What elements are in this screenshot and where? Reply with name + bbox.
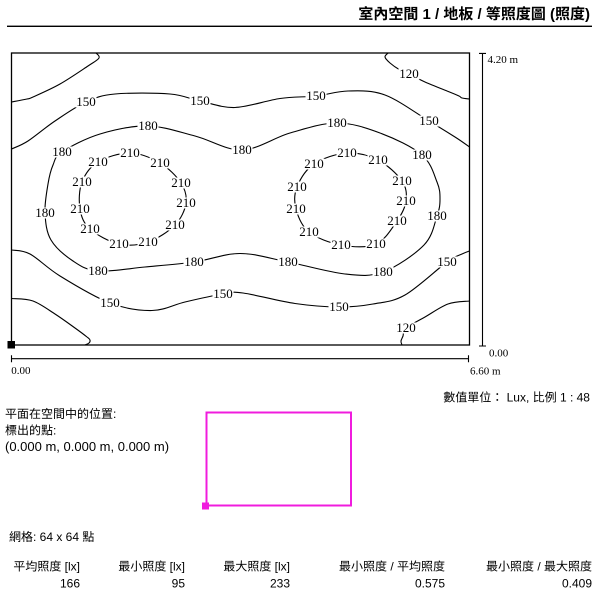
svg-text:150: 150 xyxy=(306,88,326,103)
svg-text:180: 180 xyxy=(88,263,108,278)
svg-text:210: 210 xyxy=(396,193,416,208)
svg-text:210: 210 xyxy=(337,145,357,160)
svg-text:210: 210 xyxy=(80,221,100,236)
svg-text:180: 180 xyxy=(138,118,158,133)
svg-text:95: 95 xyxy=(172,577,186,591)
svg-text:180: 180 xyxy=(373,264,393,279)
svg-text:210: 210 xyxy=(176,195,196,210)
svg-text:/: / xyxy=(534,560,544,574)
svg-text:[lx]: [lx] xyxy=(166,560,185,574)
svg-text:150: 150 xyxy=(76,94,96,109)
svg-text:150: 150 xyxy=(100,295,120,310)
svg-text:210: 210 xyxy=(392,173,412,188)
svg-text:210: 210 xyxy=(286,201,306,216)
svg-text:233: 233 xyxy=(270,577,290,591)
svg-text:210: 210 xyxy=(109,236,129,251)
svg-text:/: / xyxy=(387,560,397,574)
svg-text:166: 166 xyxy=(60,577,80,591)
svg-text:210: 210 xyxy=(70,201,90,216)
svg-text:210: 210 xyxy=(72,174,92,189)
svg-text:180: 180 xyxy=(232,142,252,157)
svg-text:180: 180 xyxy=(184,254,204,269)
svg-text::: : xyxy=(113,407,116,421)
svg-text:180: 180 xyxy=(52,144,72,159)
svg-text:210: 210 xyxy=(304,156,324,171)
svg-text:/: / xyxy=(473,6,486,23)
svg-text:[lx]: [lx] xyxy=(271,560,290,574)
svg-text:0.00: 0.00 xyxy=(489,348,509,360)
svg-text:[lx]: [lx] xyxy=(61,560,80,574)
svg-text:120: 120 xyxy=(396,320,416,335)
svg-text:210: 210 xyxy=(150,155,170,170)
svg-text:150: 150 xyxy=(190,93,210,108)
svg-text:150: 150 xyxy=(437,254,457,269)
svg-text:): ) xyxy=(585,6,590,23)
svg-text:150: 150 xyxy=(329,299,349,314)
svg-text:(0.000 m, 0.000 m, 0.000 m): (0.000 m, 0.000 m, 0.000 m) xyxy=(5,439,169,454)
svg-text:150: 150 xyxy=(213,286,233,301)
svg-text:180: 180 xyxy=(35,205,55,220)
svg-text:180: 180 xyxy=(278,254,298,269)
svg-text:210: 210 xyxy=(165,217,185,232)
svg-text:210: 210 xyxy=(387,213,407,228)
svg-text:1 : 48: 1 : 48 xyxy=(557,391,591,405)
svg-text:210: 210 xyxy=(138,234,158,249)
svg-text:4.20 m: 4.20 m xyxy=(488,54,519,66)
svg-text:210: 210 xyxy=(366,236,386,251)
svg-text:0.409: 0.409 xyxy=(562,577,592,591)
svg-text:180: 180 xyxy=(427,208,447,223)
svg-text:210: 210 xyxy=(120,145,140,160)
svg-text:Lux,: Lux, xyxy=(503,391,532,405)
svg-text:0.575: 0.575 xyxy=(415,577,445,591)
svg-text:210: 210 xyxy=(331,237,351,252)
svg-text:210: 210 xyxy=(368,152,388,167)
svg-text:150: 150 xyxy=(419,113,439,128)
svg-text::: : xyxy=(53,424,56,438)
svg-text:1 /: 1 / xyxy=(418,6,443,23)
svg-text:0.00: 0.00 xyxy=(11,365,31,377)
svg-text:210: 210 xyxy=(287,179,307,194)
svg-text:: 64 x 64: : 64 x 64 xyxy=(33,530,82,544)
svg-text:210: 210 xyxy=(299,224,319,239)
svg-text:210: 210 xyxy=(88,154,108,169)
svg-text:180: 180 xyxy=(412,147,432,162)
svg-text:120: 120 xyxy=(399,66,419,81)
svg-text:210: 210 xyxy=(171,175,191,190)
svg-text:6.60 m: 6.60 m xyxy=(470,366,501,378)
svg-text:(: ( xyxy=(546,6,555,23)
svg-text:180: 180 xyxy=(327,115,347,130)
